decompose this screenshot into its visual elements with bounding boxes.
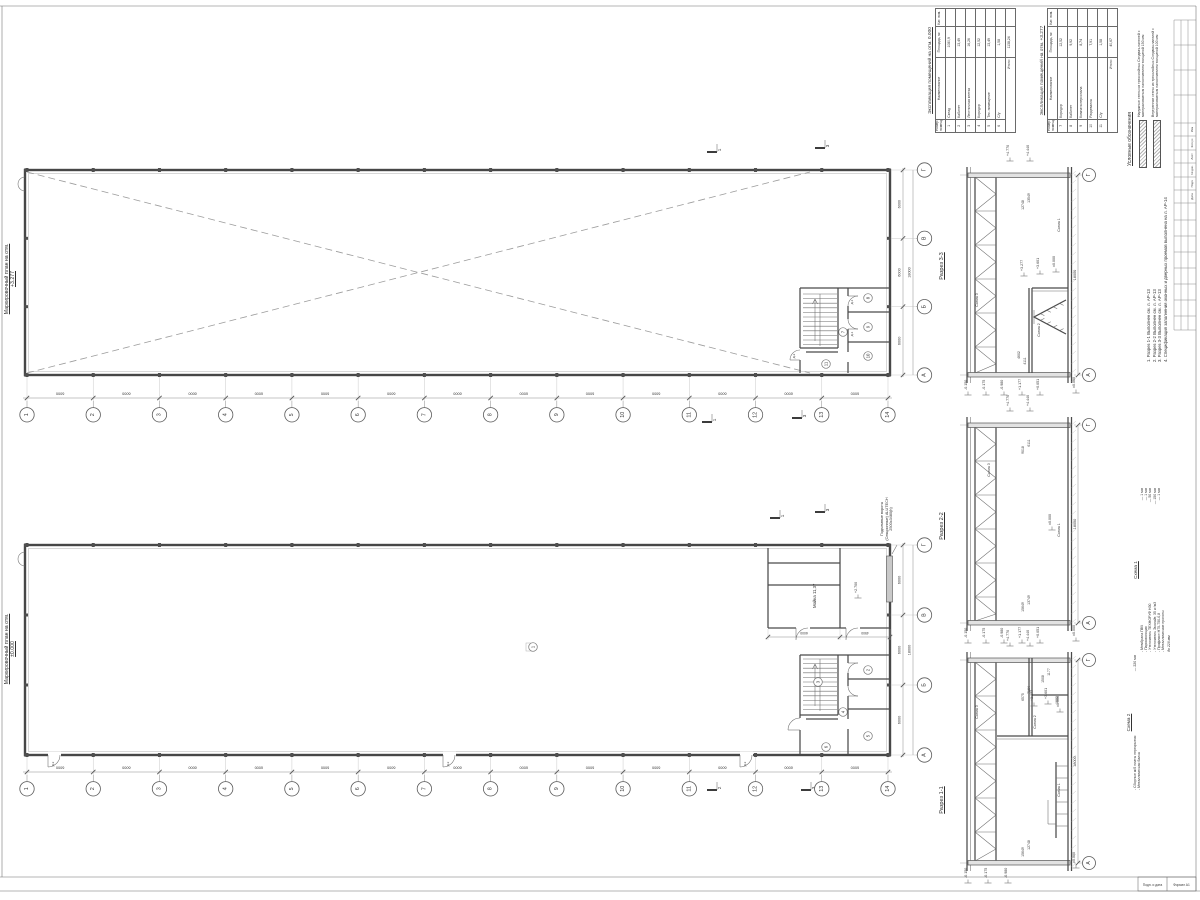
schedule-cell: Коридор <box>1057 58 1067 119</box>
room-schedule-0-title: Экспликация помещений на отм. 0.000 <box>928 8 933 133</box>
stair-step <box>1053 307 1057 309</box>
notes-block: 1. Разрез 1-1 Выполнен см. л. АР-132. Ра… <box>1146 195 1192 362</box>
level-value: -0.175 <box>982 628 986 638</box>
schedule-cell <box>975 9 985 27</box>
dim-6000: 6000 <box>586 766 594 770</box>
truss-web <box>975 427 996 621</box>
floor-hatch <box>1072 683 1077 687</box>
schedule-cell: С/у <box>995 58 1005 119</box>
schedule-cell <box>1067 9 1077 27</box>
axis-letter: Г <box>1086 423 1092 426</box>
column <box>754 373 757 377</box>
schedule-cell: 5 <box>985 119 995 132</box>
dim-6000: 6000 <box>784 766 792 770</box>
dim-label: 1177 <box>1047 668 1051 676</box>
door-arc <box>848 319 858 329</box>
column <box>688 373 691 377</box>
floor-hatch <box>1072 701 1077 705</box>
schedule-cell: Склад <box>945 58 955 119</box>
schedule-row: 8Кабинет9,92 <box>1067 9 1077 133</box>
floor-hatch <box>1072 439 1077 443</box>
schedule-cell: 9 <box>1077 119 1087 132</box>
dim-6000: 6000 <box>321 392 329 396</box>
axis-letter: А <box>922 373 928 377</box>
schedule-cell <box>1097 9 1107 27</box>
schedule-col-header: Наименование <box>935 58 945 119</box>
column <box>423 373 426 377</box>
corner-stamp-left: Подп. и дата <box>1143 883 1163 887</box>
dim-6000: 6000 <box>652 766 660 770</box>
schedule-row: 7Коридор12,52 <box>1057 9 1067 133</box>
level-value: +0.051 <box>1036 627 1040 638</box>
wall-hatch-swatch-icon <box>1153 120 1161 168</box>
schedule-cell: 10 <box>1087 119 1097 132</box>
level-value: +1.177 <box>1018 379 1022 390</box>
schedule-cell <box>1077 9 1087 27</box>
axis-letter: Г <box>1086 173 1092 176</box>
scheme1-block: Схема 1 - Мембрана ПВХ— 1 мм- Пароизоляц… <box>1133 488 1196 652</box>
door-tag: Д-1 <box>850 299 854 304</box>
column <box>754 543 757 547</box>
room-schedule-1-title: Экспликация помещений на отм. +3.277 <box>1040 8 1045 133</box>
dim-6000: 6000 <box>255 392 263 396</box>
column <box>24 169 28 172</box>
floor-hatch <box>1072 592 1077 596</box>
scheme2-items: - Сборные ж/б плиты перекрытия— 220 мм- … <box>1133 655 1141 790</box>
level-value: -0.150 <box>964 868 968 878</box>
column <box>357 168 360 172</box>
column <box>24 305 28 308</box>
axis-number: 6 <box>355 787 361 790</box>
column <box>224 753 227 757</box>
axis-letter: Б <box>922 304 928 308</box>
axis-letter: Б <box>922 683 928 687</box>
level-value: +4.440 <box>1026 395 1030 406</box>
room-tag-label: 11 <box>824 361 829 366</box>
floor-hatch <box>1072 836 1077 840</box>
schedule-cell: 2 <box>955 119 965 132</box>
schedule-cell: Тех. помещение <box>985 58 995 119</box>
column <box>887 754 891 757</box>
scheme-row: - Металлическая балка <box>1137 655 1141 790</box>
dim-6000: 6000 <box>387 766 395 770</box>
schedule-row: 3Лестничная клетка16,26 <box>965 9 975 133</box>
column <box>224 543 227 547</box>
axis-number: 13 <box>819 412 825 418</box>
room-schedule-0-grid: Номер помещ.НаименованиеПлощадь, м²Кат. … <box>935 8 1016 133</box>
axis-number: 9 <box>554 413 560 416</box>
column <box>887 169 891 172</box>
axis-number: 4 <box>223 787 229 790</box>
axis-letter: Г <box>922 168 928 171</box>
floor-hatch <box>1072 610 1077 614</box>
dim-6000: 6000 <box>188 766 196 770</box>
legend-item-text: Наружные стены из трехслойных Сэндвич-па… <box>1137 13 1145 117</box>
column <box>622 373 625 377</box>
column <box>357 543 360 547</box>
dim-18000: 18000 <box>908 267 912 278</box>
stair-step <box>1040 318 1044 320</box>
door-tag: Д-3 <box>743 761 747 766</box>
floor-hatch <box>1072 728 1077 732</box>
axis-number: 7 <box>421 787 427 790</box>
section-column <box>968 658 1070 663</box>
schedule-col-header: Номер помещ. <box>1047 119 1057 132</box>
schedule-cell: Кабинет <box>1067 58 1077 119</box>
column <box>423 168 426 172</box>
column <box>688 543 691 547</box>
dim-6000: 6000 <box>898 646 902 654</box>
plan-bottom-title: Маркировочный план на отм. ±0.000 <box>4 593 20 705</box>
dim-6000: 6000 <box>188 392 196 396</box>
column <box>224 373 227 377</box>
level-value: +1.177 <box>1018 627 1022 638</box>
schedule-cell <box>1005 9 1015 27</box>
axis-number: 12 <box>753 412 759 418</box>
floor-hatch <box>1072 351 1077 355</box>
level-value: -0.175 <box>982 380 986 390</box>
scheme1-total: до 228 мм <box>1167 488 1171 652</box>
column <box>555 543 558 547</box>
dim-label: 12748 <box>1027 840 1031 850</box>
door-tag: Д-1 <box>850 331 854 336</box>
schedule-total-value: 1138,24 <box>1005 27 1015 58</box>
dim-6000: 6000 <box>586 392 594 396</box>
axis-number: 3 <box>156 787 162 790</box>
schedule-cell <box>1057 9 1067 27</box>
floor-hatch <box>1072 484 1077 488</box>
floor-hatch <box>1072 234 1077 238</box>
schedule-cell: 8 <box>1067 119 1077 132</box>
floor-hatch <box>1072 773 1077 777</box>
schedule-cell: С/у <box>1097 58 1107 119</box>
axis-letter: В <box>922 613 928 617</box>
schedule-cell: 3 <box>965 119 975 132</box>
dim-6000: 6000 <box>898 576 902 584</box>
floor-hatch <box>1072 333 1077 337</box>
floor-hatch <box>1072 665 1077 669</box>
level-value: ±0.000 <box>1052 256 1056 267</box>
floor-hatch <box>1072 207 1077 211</box>
dim-label: 9018 <box>1021 446 1025 454</box>
dim-label: 4500 <box>861 631 869 635</box>
dim-6000: 6000 <box>519 766 527 770</box>
column <box>887 237 891 240</box>
door-arc <box>788 718 800 730</box>
legend-block: Условные обозначения Наружные стены из т… <box>1127 8 1196 168</box>
schedule-total-label: Итого: <box>1005 58 1015 133</box>
schedule-cell: 6 <box>995 119 1005 132</box>
axis-number: 13 <box>819 786 825 792</box>
dim-label: 1508 <box>1041 675 1045 683</box>
section-flag-label: 3 <box>825 144 830 147</box>
schedule-cell <box>1107 9 1117 27</box>
legend-item: Внутренние стены из трехслойных Сэндвич-… <box>1151 8 1161 168</box>
door-tag: Д-3 <box>446 761 450 766</box>
level-value: +3.277 <box>1030 690 1034 701</box>
column <box>555 753 558 757</box>
stair-step <box>1047 322 1051 324</box>
floor-hatch <box>1072 243 1077 247</box>
axis-number: 7 <box>421 413 427 416</box>
plan-outer-wall <box>25 545 890 755</box>
dim-18000: 18000 <box>1073 270 1077 281</box>
floor-hatch <box>1072 511 1077 515</box>
level-value: ±0.000 <box>1072 625 1076 636</box>
wall-hatch-swatch-icon <box>1139 120 1147 168</box>
section-column <box>968 861 1070 866</box>
floor-hatch <box>1072 448 1077 452</box>
plan-inner-wall <box>29 174 887 372</box>
schedule-cell: Комната персонала <box>1077 58 1087 119</box>
axis-number: 4 <box>223 413 229 416</box>
axis-number: 11 <box>686 786 692 792</box>
floor-hatch <box>1072 619 1077 623</box>
scheme-tag: Схема 3 <box>975 705 979 719</box>
plan-inner-wall <box>29 549 887 752</box>
floor-hatch <box>1072 315 1077 319</box>
scheme2-block: Схема 2 - Сборные ж/б плиты перекрытия— … <box>1126 655 1160 790</box>
dim-label: 12748 <box>1021 200 1025 210</box>
dim-18000: 18000 <box>908 645 912 656</box>
schedule-cell <box>995 9 1005 27</box>
column <box>887 305 891 308</box>
floor-hatch <box>1072 800 1077 804</box>
column <box>24 684 28 687</box>
sectional-gate <box>887 556 893 602</box>
schedule-cell: 8,74 <box>1077 27 1087 58</box>
dim-6000: 6000 <box>851 392 859 396</box>
dim-6000: 6000 <box>898 268 902 276</box>
axis-number: 14 <box>885 786 891 792</box>
legend-items: Наружные стены из трехслойных Сэндвич-па… <box>1137 8 1161 168</box>
section-flag-label: 1 <box>712 418 717 421</box>
section-1-title: Разрез 1-1 <box>939 770 951 830</box>
floor-hatch <box>1072 261 1077 265</box>
column <box>489 373 492 377</box>
schedule-row: 11С/у1,58 <box>1097 9 1107 133</box>
floor-hatch <box>1072 189 1077 193</box>
column <box>754 168 757 172</box>
axis-number: 10 <box>620 412 626 418</box>
schedule-col-header: Номер помещ. <box>935 119 945 132</box>
plan-top-title: Маркировочный план на отм. +3.277 <box>4 223 20 335</box>
floor-hatch <box>1072 601 1077 605</box>
column <box>754 753 757 757</box>
axis-number: 2 <box>90 413 96 416</box>
door-arc <box>848 686 858 696</box>
legend-item-text: Внутренние стены из трехслойных Сэндвич-… <box>1151 13 1159 117</box>
schedule-total-label: Итого: <box>1107 58 1117 133</box>
column <box>489 168 492 172</box>
schedule-col-header: Кат. пом. <box>935 9 945 27</box>
dim-label: 6000 <box>800 631 808 635</box>
column <box>224 168 227 172</box>
floor-hatch <box>1072 692 1077 696</box>
room-schedule-1-grid: Номер помещ.НаименованиеПлощадь, м²Кат. … <box>1047 8 1118 133</box>
dim-6000: 6000 <box>898 716 902 724</box>
column <box>357 753 360 757</box>
axis-number: 1 <box>24 787 30 790</box>
schedule-cell <box>1087 9 1097 27</box>
column <box>688 753 691 757</box>
floor-hatch <box>1072 710 1077 714</box>
schedule-col-header: Наименование <box>1047 58 1057 119</box>
scheme-row: - Металлические прогоны <box>1161 488 1165 652</box>
floor-hatch <box>1072 493 1077 497</box>
schedule-row: 9Комната персонала8,74 <box>1077 9 1087 133</box>
legend-item: Наружные стены из трехслойных Сэндвич-па… <box>1137 8 1147 168</box>
schedule-cell: 13,49 <box>985 27 995 58</box>
axis-number: 2 <box>90 787 96 790</box>
column <box>290 373 293 377</box>
section-flag-label: 2 <box>717 786 722 789</box>
schedule-cell: 13,49 <box>955 27 965 58</box>
dim-label: 13549 <box>1027 193 1031 203</box>
door-tag: Д-2 <box>792 353 796 358</box>
dim-6000: 6000 <box>122 392 130 396</box>
floor-hatch <box>1072 430 1077 434</box>
floor-hatch <box>1072 583 1077 587</box>
schedule-cell: 9,92 <box>1067 27 1077 58</box>
scheme1-title: Схема 1 <box>1133 488 1138 652</box>
schedule-cell <box>985 9 995 27</box>
axis-number: 1 <box>24 413 30 416</box>
door-tag: Д-3 <box>51 761 55 766</box>
level-value: +4.770 <box>1006 395 1010 406</box>
schedule-row: 10Раздевалка7,91 <box>1087 9 1097 133</box>
room-schedule-table: Номер помещ.НаименованиеПлощадь, м²Кат. … <box>1047 8 1118 133</box>
floor-hatch <box>1072 791 1077 795</box>
schedule-cell: Коридор <box>975 58 985 119</box>
dim-6000: 6000 <box>898 337 902 345</box>
note-line: 4. Спецификация заполнения оконных и две… <box>1163 195 1169 362</box>
axis-number: 5 <box>289 413 295 416</box>
axis-number: 8 <box>488 413 494 416</box>
floor-hatch <box>1072 369 1077 373</box>
schedule-col-header: Площадь, м² <box>1047 27 1057 58</box>
corner-stamp-right: Формат А1 <box>1173 883 1190 887</box>
schedule-cell: 7 <box>1057 119 1067 132</box>
column <box>555 373 558 377</box>
floor-hatch <box>1072 782 1077 786</box>
axis-number: 12 <box>753 786 759 792</box>
schedule-row: 4Коридор12,52 <box>975 9 985 133</box>
floor-hatch <box>1072 457 1077 461</box>
axis-number: 10 <box>620 786 626 792</box>
dim-label: 15649 <box>1021 847 1025 857</box>
door-gap <box>740 752 753 758</box>
axis-number: 8 <box>488 787 494 790</box>
stair-arrow <box>813 299 818 341</box>
column <box>622 168 625 172</box>
floor-hatch <box>1072 288 1077 292</box>
scheme-tag: Схема 2 <box>1037 323 1041 337</box>
plan-bottom-title-line2: ±0.000 <box>10 593 16 705</box>
column <box>489 543 492 547</box>
axis-number: 6 <box>355 413 361 416</box>
dim-6000: 6000 <box>122 766 130 770</box>
schedule-cell: 7,91 <box>1087 27 1097 58</box>
column <box>92 168 95 172</box>
dim-label: 6111 <box>1027 439 1031 446</box>
level-value: -0.175 <box>984 868 988 878</box>
column <box>423 543 426 547</box>
schedule-row: 1Склад1080,9 <box>945 9 955 133</box>
floor-hatch <box>1072 502 1077 506</box>
schedule-total-row: Итого:1138,24 <box>1005 9 1015 133</box>
column <box>290 543 293 547</box>
column <box>158 753 161 757</box>
section-flag-label: 3 <box>802 414 807 417</box>
schedule-cell: 4 <box>975 119 985 132</box>
stair-step <box>1053 325 1057 327</box>
floor-hatch <box>1072 171 1077 175</box>
dim-6000: 6000 <box>453 766 461 770</box>
schedule-cell: 1080,9 <box>945 27 955 58</box>
floor-hatch <box>1072 574 1077 578</box>
level-value: -0.980 <box>1000 628 1004 638</box>
axis-letter: В <box>922 236 928 240</box>
scheme-tag: Схема 1 <box>1057 523 1061 537</box>
stair-step <box>1040 314 1044 316</box>
floor-hatch <box>1072 547 1077 551</box>
level-value: +4.770 <box>1006 145 1010 156</box>
scheme-layer-value: — 220 мм <box>1133 655 1137 671</box>
section-column <box>968 621 1070 626</box>
truss-web <box>975 177 996 373</box>
level-value: +0.051 <box>1036 379 1040 390</box>
floor-hatch <box>1072 324 1077 328</box>
door-arc <box>846 628 858 640</box>
section-column <box>968 373 1070 378</box>
dim-6000: 6000 <box>652 392 660 396</box>
floor-hatch <box>1072 297 1077 301</box>
floor-hatch <box>1072 737 1077 741</box>
column <box>24 754 28 757</box>
scheme-tag: Схема 3 <box>975 293 979 307</box>
schedule-col-header: Площадь, м² <box>935 27 945 58</box>
dim-6000: 6000 <box>453 392 461 396</box>
door-gap <box>48 752 61 758</box>
column <box>158 543 161 547</box>
section-flag-label: 3 <box>825 508 830 511</box>
schedule-cell: 16,26 <box>965 27 975 58</box>
column <box>24 544 28 547</box>
schedule-cell <box>965 9 975 27</box>
scheme1-items: - Мембрана ПВХ— 1 мм- Пароизоляция— 1 мм… <box>1140 488 1165 652</box>
plan-outer-wall <box>25 170 890 375</box>
schedule-cell: Лестничная клетка <box>965 58 975 119</box>
dim-label: 13749 <box>1027 595 1031 605</box>
column <box>24 237 28 240</box>
schedule-cell: 1 <box>945 119 955 132</box>
section-2-title: Разрез 2-2 <box>939 496 951 556</box>
level-value: +4.770 <box>1006 630 1010 641</box>
dim-6000: 6000 <box>56 392 64 396</box>
dim-6000: 6000 <box>519 392 527 396</box>
scheme-tag: Схема 3 <box>987 463 991 477</box>
column <box>820 168 823 172</box>
axis-number: 5 <box>289 787 295 790</box>
column <box>92 543 95 547</box>
level-value: +3.601 <box>1044 688 1048 699</box>
column <box>622 753 625 757</box>
dim-label: 15649 <box>1021 602 1025 612</box>
column <box>92 373 95 377</box>
floor-hatch <box>1072 342 1077 346</box>
dim-label: 4602 <box>1017 351 1021 359</box>
